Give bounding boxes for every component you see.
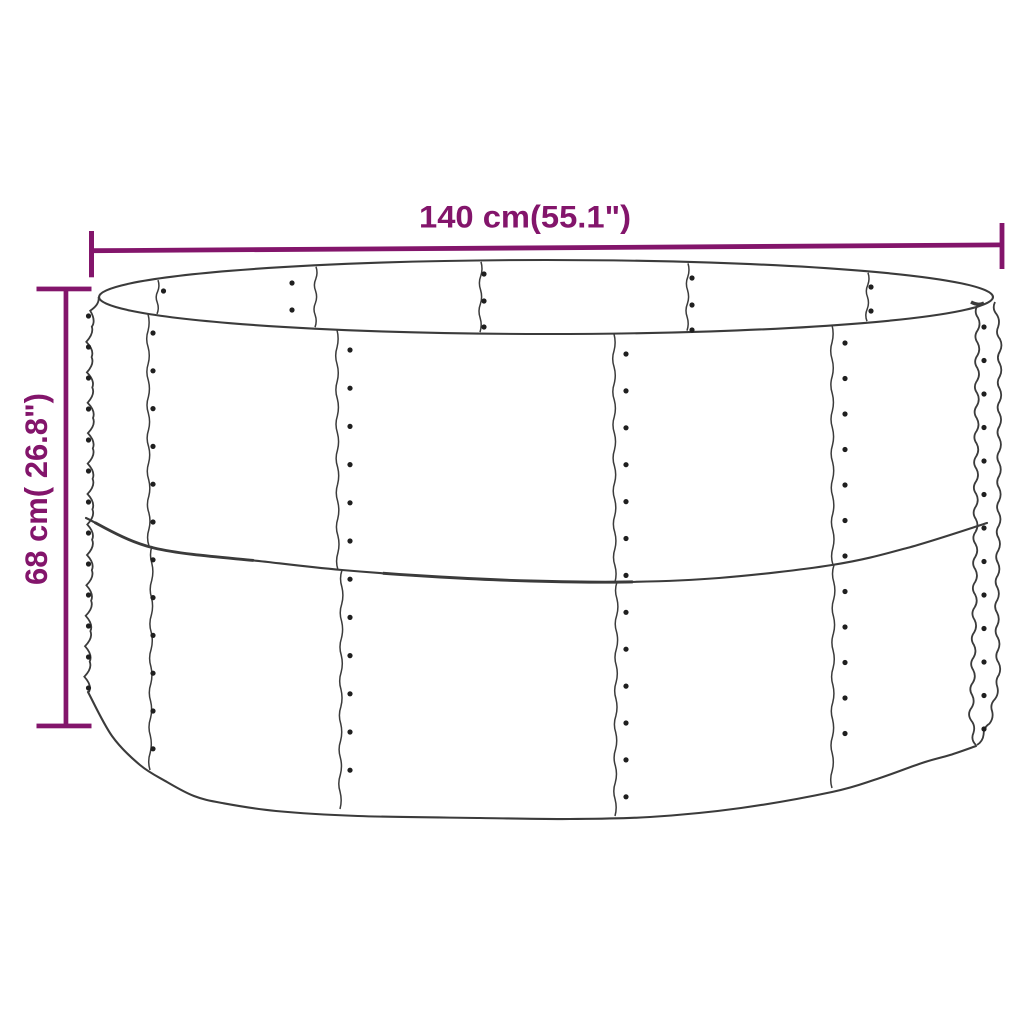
svg-text:140 cm(55.1"): 140 cm(55.1") (419, 199, 631, 235)
svg-text:68 cm( 26.8"): 68 cm( 26.8") (18, 393, 54, 585)
